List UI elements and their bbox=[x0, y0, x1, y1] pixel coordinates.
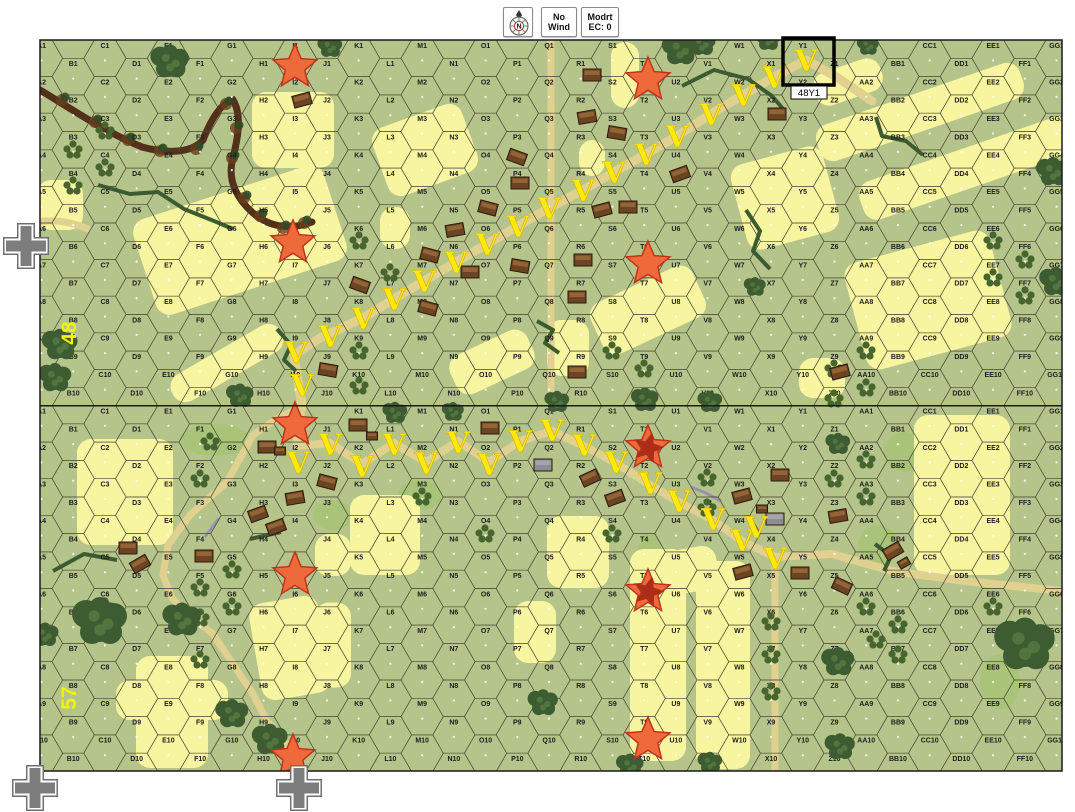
hex-label: W7 bbox=[734, 628, 745, 635]
hex-label: R4 bbox=[576, 536, 585, 543]
hex-center-dot bbox=[72, 224, 74, 226]
hex-center-dot bbox=[897, 370, 899, 372]
hex-center-dot bbox=[104, 535, 106, 537]
hex-center-dot bbox=[548, 315, 550, 317]
hex-label: K7 bbox=[354, 262, 363, 269]
wooden-building bbox=[349, 419, 367, 431]
hex-center-dot bbox=[104, 389, 106, 391]
hex-label: M4 bbox=[417, 153, 427, 160]
orchard-tree-icon bbox=[355, 341, 362, 348]
hex-center-dot bbox=[421, 352, 423, 354]
hex-label: DD9 bbox=[954, 354, 968, 361]
hex-label: I3 bbox=[292, 482, 298, 489]
woods-highlight bbox=[835, 445, 840, 450]
wind-button[interactable]: No Wind bbox=[541, 7, 577, 37]
hex-center-dot bbox=[833, 297, 835, 299]
hex-label: S8 bbox=[608, 299, 617, 306]
victory-marker[interactable]: V bbox=[474, 228, 499, 263]
hex-label: BB10 bbox=[889, 756, 907, 763]
victory-marker[interactable]: V bbox=[570, 174, 595, 209]
hex-label: FF3 bbox=[1019, 134, 1032, 141]
vasl-window: { "toolbar": { "compass_letter": "N", "w… bbox=[0, 0, 1075, 812]
hex-center-dot bbox=[675, 718, 677, 720]
hex-center-dot bbox=[802, 389, 804, 391]
victory-marker[interactable]: V bbox=[350, 302, 375, 337]
hex-center-dot bbox=[484, 644, 486, 646]
hex-center-dot bbox=[72, 261, 74, 263]
hex-center-dot bbox=[421, 59, 423, 61]
hex-label: O2 bbox=[481, 79, 490, 86]
woods-highlight bbox=[834, 741, 840, 747]
hex-center-dot bbox=[421, 206, 423, 208]
hex-label: B3 bbox=[69, 500, 78, 507]
hex-center-dot bbox=[897, 772, 899, 774]
woods-highlight bbox=[42, 636, 48, 642]
hex-label: DD2 bbox=[954, 98, 968, 105]
hex-label: U7 bbox=[671, 262, 680, 269]
hex-center-dot bbox=[611, 644, 613, 646]
hex-center-dot bbox=[580, 589, 582, 591]
orchard-tree-icon bbox=[862, 378, 869, 385]
hex-center-dot bbox=[580, 334, 582, 336]
hex-label: M5 bbox=[417, 189, 427, 196]
hex-center-dot bbox=[104, 681, 106, 683]
victory-marker[interactable]: V bbox=[698, 98, 723, 133]
victory-marker[interactable]: V bbox=[381, 283, 406, 318]
orchard-tree-icon bbox=[894, 615, 901, 622]
woods-highlight bbox=[707, 764, 712, 769]
hex-center-dot bbox=[358, 644, 360, 646]
hex-center-dot bbox=[960, 589, 962, 591]
wooden-building bbox=[828, 509, 848, 524]
hex-center-dot bbox=[929, 59, 931, 61]
hex-center-dot bbox=[1055, 461, 1057, 463]
woods-highlight bbox=[262, 732, 269, 739]
hex-center-dot bbox=[136, 261, 138, 263]
hex-center-dot bbox=[738, 425, 740, 427]
hex-center-dot bbox=[929, 425, 931, 427]
hex-center-dot bbox=[262, 151, 264, 153]
wooden-building bbox=[568, 366, 586, 378]
compass-button[interactable]: N bbox=[503, 7, 533, 37]
victory-marker[interactable]: V bbox=[762, 542, 787, 577]
hex-center-dot bbox=[580, 663, 582, 665]
victory-marker[interactable]: V bbox=[317, 428, 342, 463]
board-number-label: 57 bbox=[58, 686, 81, 709]
victory-marker[interactable]: V bbox=[317, 320, 342, 355]
hex-label: C3 bbox=[100, 482, 109, 489]
hex-center-dot bbox=[929, 169, 931, 171]
hex-center-dot bbox=[167, 718, 169, 720]
hex-label: N4 bbox=[449, 536, 458, 543]
hex-center-dot bbox=[231, 315, 233, 317]
hex-label: S1 bbox=[608, 43, 617, 50]
hex-center-dot bbox=[992, 754, 994, 756]
environment-conditions-button[interactable]: Modrt EC: 0 bbox=[581, 7, 619, 37]
hex-center-dot bbox=[770, 370, 772, 372]
hex-label: R8 bbox=[576, 683, 585, 690]
woods-highlight bbox=[392, 414, 397, 419]
hex-label: O5 bbox=[481, 555, 490, 562]
hex-label: Y4 bbox=[798, 518, 807, 525]
hex-label: J3 bbox=[323, 500, 331, 507]
hex-label: E10 bbox=[162, 738, 175, 745]
hex-label: S4 bbox=[608, 518, 617, 525]
victory-marker[interactable]: V bbox=[601, 156, 626, 191]
hex-center-dot bbox=[738, 279, 740, 281]
hex-label: H1 bbox=[259, 427, 268, 434]
hex-center-dot bbox=[992, 352, 994, 354]
hex-label: K9 bbox=[354, 701, 363, 708]
hex-center-dot bbox=[770, 297, 772, 299]
hex-center-dot bbox=[389, 224, 391, 226]
hex-center-dot bbox=[326, 589, 328, 591]
hex-center-dot bbox=[992, 389, 994, 391]
hex-label: AA10 bbox=[857, 738, 875, 745]
hex-label: K5 bbox=[354, 189, 363, 196]
hex-center-dot bbox=[611, 242, 613, 244]
woods-highlight bbox=[162, 54, 170, 62]
hex-label: J9 bbox=[323, 719, 331, 726]
hex-center-dot bbox=[1055, 644, 1057, 646]
hex-label: Z9 bbox=[830, 719, 838, 726]
hex-center-dot bbox=[675, 389, 677, 391]
orchard-tree-icon bbox=[612, 535, 619, 542]
victory-marker[interactable]: V bbox=[443, 246, 468, 281]
hex-label: S7 bbox=[608, 262, 617, 269]
hex-label: AA6 bbox=[859, 591, 873, 598]
orchard-tree-icon bbox=[862, 487, 869, 494]
hex-label: EE9 bbox=[986, 336, 999, 343]
hex-center-dot bbox=[136, 736, 138, 738]
woods-highlight bbox=[327, 48, 332, 53]
orchard-tree-icon bbox=[986, 242, 993, 249]
hex-label: M7 bbox=[417, 628, 427, 635]
hex-center-dot bbox=[358, 571, 360, 573]
hex-center-dot bbox=[136, 772, 138, 774]
hex-center-dot bbox=[992, 169, 994, 171]
woods-highlight bbox=[753, 288, 757, 292]
victory-marker[interactable]: V bbox=[349, 450, 374, 485]
woods-highlight bbox=[94, 624, 105, 635]
orchard-tree-icon bbox=[771, 656, 778, 663]
hex-label: F3 bbox=[196, 134, 204, 141]
hex-label: C1 bbox=[100, 408, 109, 415]
hex-label: M8 bbox=[417, 665, 427, 672]
hex-center-dot bbox=[516, 772, 518, 774]
hex-label: E5 bbox=[164, 555, 173, 562]
hex-label: P10 bbox=[511, 391, 524, 398]
hex-label: H5 bbox=[259, 573, 268, 580]
victory-marker[interactable]: V bbox=[476, 448, 501, 483]
hex-label: V5 bbox=[703, 573, 712, 580]
hex-label: K2 bbox=[354, 79, 363, 86]
hex-center-dot bbox=[262, 114, 264, 116]
hex-center-dot bbox=[199, 443, 201, 445]
hex-center-dot bbox=[707, 224, 709, 226]
hex-center-dot bbox=[675, 754, 677, 756]
victory-marker[interactable]: V bbox=[283, 336, 308, 371]
hex-label: P2 bbox=[513, 98, 522, 105]
hex-center-dot bbox=[453, 516, 455, 518]
hex-center-dot bbox=[675, 96, 677, 98]
hex-center-dot bbox=[358, 608, 360, 610]
hex-label: H8 bbox=[259, 317, 268, 324]
orchard-tree-icon bbox=[101, 158, 108, 165]
hex-label: O8 bbox=[481, 299, 490, 306]
victory-marker[interactable]: V bbox=[381, 428, 406, 463]
hex-center-dot bbox=[421, 389, 423, 391]
woods-highlight bbox=[1053, 283, 1060, 290]
orchard-tree-icon bbox=[898, 656, 905, 663]
hex-center-dot bbox=[326, 626, 328, 628]
hex-label: S2 bbox=[608, 79, 617, 86]
hex-center-dot bbox=[707, 772, 709, 774]
hex-center-dot bbox=[929, 608, 931, 610]
hex-label: A10 bbox=[35, 738, 48, 745]
hex-label: R10 bbox=[574, 391, 587, 398]
orchard-tree-icon bbox=[866, 608, 873, 615]
balkenkreuz-counter[interactable] bbox=[276, 765, 322, 811]
hex-label: D3 bbox=[132, 134, 141, 141]
victory-marker[interactable]: V bbox=[603, 446, 628, 481]
hex-label: R6 bbox=[576, 244, 585, 251]
hex-label: F10 bbox=[194, 756, 206, 763]
hex-label: V6 bbox=[703, 244, 712, 251]
orchard-tree-icon bbox=[608, 524, 615, 531]
hex-center-dot bbox=[865, 96, 867, 98]
hex-label: U7 bbox=[671, 628, 680, 635]
hex-label: N3 bbox=[449, 134, 458, 141]
hex-label: DD7 bbox=[954, 646, 968, 653]
hex-center-dot bbox=[675, 681, 677, 683]
hex-center-dot bbox=[611, 535, 613, 537]
gully-tree-icon bbox=[195, 142, 204, 151]
orchard-tree-icon bbox=[359, 242, 366, 249]
victory-marker[interactable]: V bbox=[539, 414, 564, 449]
hex-label: EE8 bbox=[986, 299, 999, 306]
hex-label: D7 bbox=[132, 281, 141, 288]
victory-marker[interactable]: V bbox=[793, 44, 818, 79]
hex-label: BB4 bbox=[891, 171, 905, 178]
victory-marker[interactable]: V bbox=[507, 425, 532, 460]
victory-marker[interactable]: V bbox=[571, 429, 596, 464]
hex-center-dot bbox=[738, 608, 740, 610]
hex-center-dot bbox=[72, 772, 74, 774]
hex-label: N2 bbox=[449, 98, 458, 105]
victory-marker[interactable]: V bbox=[664, 120, 689, 155]
hex-center-dot bbox=[643, 663, 645, 665]
hex-center-dot bbox=[675, 425, 677, 427]
orchard-tree-icon bbox=[200, 480, 207, 487]
hex-label: FF3 bbox=[1019, 500, 1032, 507]
hex-label: EE3 bbox=[986, 116, 999, 123]
orchard-tree-icon bbox=[206, 432, 213, 439]
woods-highlight bbox=[676, 52, 683, 59]
hex-label: B4 bbox=[69, 536, 78, 543]
orchard-tree-icon bbox=[196, 469, 203, 476]
hex-center-dot bbox=[707, 151, 709, 153]
hex-label: H3 bbox=[259, 134, 268, 141]
hex-center-dot bbox=[199, 224, 201, 226]
orchard-tree-icon bbox=[203, 443, 210, 450]
ec-line-2: EC: 0 bbox=[585, 22, 615, 32]
hex-label: E3 bbox=[164, 482, 173, 489]
hex-label: E8 bbox=[164, 299, 173, 306]
victory-marker[interactable]: V bbox=[285, 446, 310, 481]
hex-center-dot bbox=[548, 535, 550, 537]
wooden-building bbox=[275, 447, 286, 455]
hex-label: CC3 bbox=[923, 116, 937, 123]
hex-center-dot bbox=[199, 736, 201, 738]
hex-label: EE9 bbox=[986, 701, 999, 708]
hex-label: C8 bbox=[100, 665, 109, 672]
hex-label: R8 bbox=[576, 317, 585, 324]
hex-center-dot bbox=[484, 59, 486, 61]
hex-center-dot bbox=[960, 699, 962, 701]
victory-marker[interactable]: V bbox=[637, 467, 662, 502]
hex-center-dot bbox=[326, 772, 328, 774]
hex-label: E2 bbox=[164, 445, 173, 452]
hex-label: Y3 bbox=[798, 482, 807, 489]
hex-label: V1 bbox=[703, 61, 712, 68]
orchard-tree-icon bbox=[359, 352, 366, 359]
hex-label: M5 bbox=[417, 555, 427, 562]
hex-center-dot bbox=[929, 242, 931, 244]
hex-center-dot bbox=[262, 772, 264, 774]
victory-marker[interactable]: V bbox=[505, 210, 530, 245]
hex-label: X3 bbox=[767, 500, 776, 507]
hex-label: DD2 bbox=[954, 463, 968, 470]
hex-center-dot bbox=[738, 59, 740, 61]
hex-center-dot bbox=[104, 718, 106, 720]
hex-center-dot bbox=[643, 626, 645, 628]
victory-marker[interactable]: V bbox=[413, 447, 438, 482]
hex-label: F8 bbox=[196, 683, 204, 690]
victory-marker[interactable]: V bbox=[730, 79, 755, 114]
hex-center-dot bbox=[484, 681, 486, 683]
orchard-tree-icon bbox=[98, 169, 105, 176]
victory-marker[interactable]: V bbox=[289, 369, 314, 404]
wooden-building bbox=[285, 491, 305, 506]
victory-marker[interactable]: V bbox=[633, 138, 658, 173]
hex-center-dot bbox=[643, 297, 645, 299]
hex-label: O9 bbox=[481, 701, 490, 708]
hex-label: GG10 bbox=[1047, 738, 1066, 745]
main-toolbar: N No Wind Modrt EC: 0 bbox=[0, 0, 1075, 40]
hex-center-dot bbox=[358, 535, 360, 537]
hex-center-dot bbox=[580, 736, 582, 738]
hex-center-dot bbox=[770, 589, 772, 591]
orchard-tree-icon bbox=[355, 231, 362, 238]
orchard-tree-icon bbox=[830, 359, 837, 366]
hex-label: S6 bbox=[608, 591, 617, 598]
hex-center-dot bbox=[802, 644, 804, 646]
hex-label: F7 bbox=[196, 281, 204, 288]
victory-marker[interactable]: V bbox=[700, 503, 725, 538]
hex-label: Y4 bbox=[798, 153, 807, 160]
hex-label: E7 bbox=[164, 262, 173, 269]
hex-label: B10 bbox=[67, 391, 80, 398]
victory-marker[interactable]: V bbox=[536, 192, 561, 227]
hex-label: BB3 bbox=[891, 134, 905, 141]
hex-label: E6 bbox=[164, 591, 173, 598]
victory-marker[interactable]: V bbox=[445, 426, 470, 461]
woods-highlight bbox=[1049, 275, 1056, 282]
orchard-tree-icon bbox=[352, 352, 359, 359]
victory-marker[interactable]: V bbox=[666, 485, 691, 520]
hex-center-dot bbox=[580, 699, 582, 701]
hex-label: AA3 bbox=[859, 116, 873, 123]
hex-label: CC8 bbox=[923, 299, 937, 306]
hex-center-dot bbox=[1024, 370, 1026, 372]
hex-center-dot bbox=[707, 736, 709, 738]
woods-highlight bbox=[56, 347, 63, 354]
victory-marker[interactable]: V bbox=[411, 265, 436, 300]
hex-label: L6 bbox=[386, 610, 394, 617]
orchard-tree-icon bbox=[352, 242, 359, 249]
hex-center-dot bbox=[199, 187, 201, 189]
hex-label: O7 bbox=[481, 628, 490, 635]
hex-label: C10 bbox=[99, 738, 112, 745]
hex-center-dot bbox=[104, 461, 106, 463]
hex-label: B5 bbox=[69, 573, 78, 580]
hex-center-dot bbox=[611, 754, 613, 756]
hex-label: C4 bbox=[100, 518, 109, 525]
hex-label: Z8 bbox=[830, 683, 838, 690]
hex-label: DD8 bbox=[954, 683, 968, 690]
game-map[interactable]: A1A2A3A4A5A6A7A8A9A10B1B2B3B4B5B6B7B8B9B… bbox=[0, 0, 1075, 812]
hex-center-dot bbox=[802, 132, 804, 134]
hex-label: N2 bbox=[449, 463, 458, 470]
hex-center-dot bbox=[643, 553, 645, 555]
hex-label: G2 bbox=[227, 445, 236, 452]
hex-center-dot bbox=[770, 261, 772, 263]
hex-center-dot bbox=[516, 78, 518, 80]
orchard-tree-icon bbox=[859, 352, 866, 359]
hex-center-dot bbox=[516, 516, 518, 518]
hex-center-dot bbox=[136, 516, 138, 518]
hex-center-dot bbox=[484, 498, 486, 500]
hex-label: H10 bbox=[257, 756, 270, 763]
hex-label: D1 bbox=[132, 61, 141, 68]
hex-center-dot bbox=[72, 443, 74, 445]
hex-center-dot bbox=[580, 78, 582, 80]
hex-center-dot bbox=[897, 480, 899, 482]
hex-label: R1 bbox=[576, 61, 585, 68]
hex-label: B7 bbox=[69, 281, 78, 288]
victory-marker[interactable]: V bbox=[743, 511, 768, 546]
hex-center-dot bbox=[833, 480, 835, 482]
hex-center-dot bbox=[453, 589, 455, 591]
hex-label: AA4 bbox=[859, 518, 873, 525]
orchard-tree-icon bbox=[1021, 286, 1028, 293]
hex-label: N3 bbox=[449, 500, 458, 507]
woods-highlight bbox=[765, 41, 770, 46]
hex-label: G8 bbox=[227, 665, 236, 672]
hex-center-dot bbox=[231, 352, 233, 354]
hex-label: E5 bbox=[164, 189, 173, 196]
woods-highlight bbox=[705, 758, 710, 763]
hex-center-dot bbox=[72, 370, 74, 372]
hex-label: AA5 bbox=[859, 189, 873, 196]
balkenkreuz-counter[interactable] bbox=[12, 765, 58, 811]
orchard-tree-icon bbox=[193, 589, 200, 596]
hex-label: P4 bbox=[513, 536, 522, 543]
hex-label: C9 bbox=[100, 701, 109, 708]
hex-center-dot bbox=[1055, 535, 1057, 537]
hex-center-dot bbox=[167, 206, 169, 208]
